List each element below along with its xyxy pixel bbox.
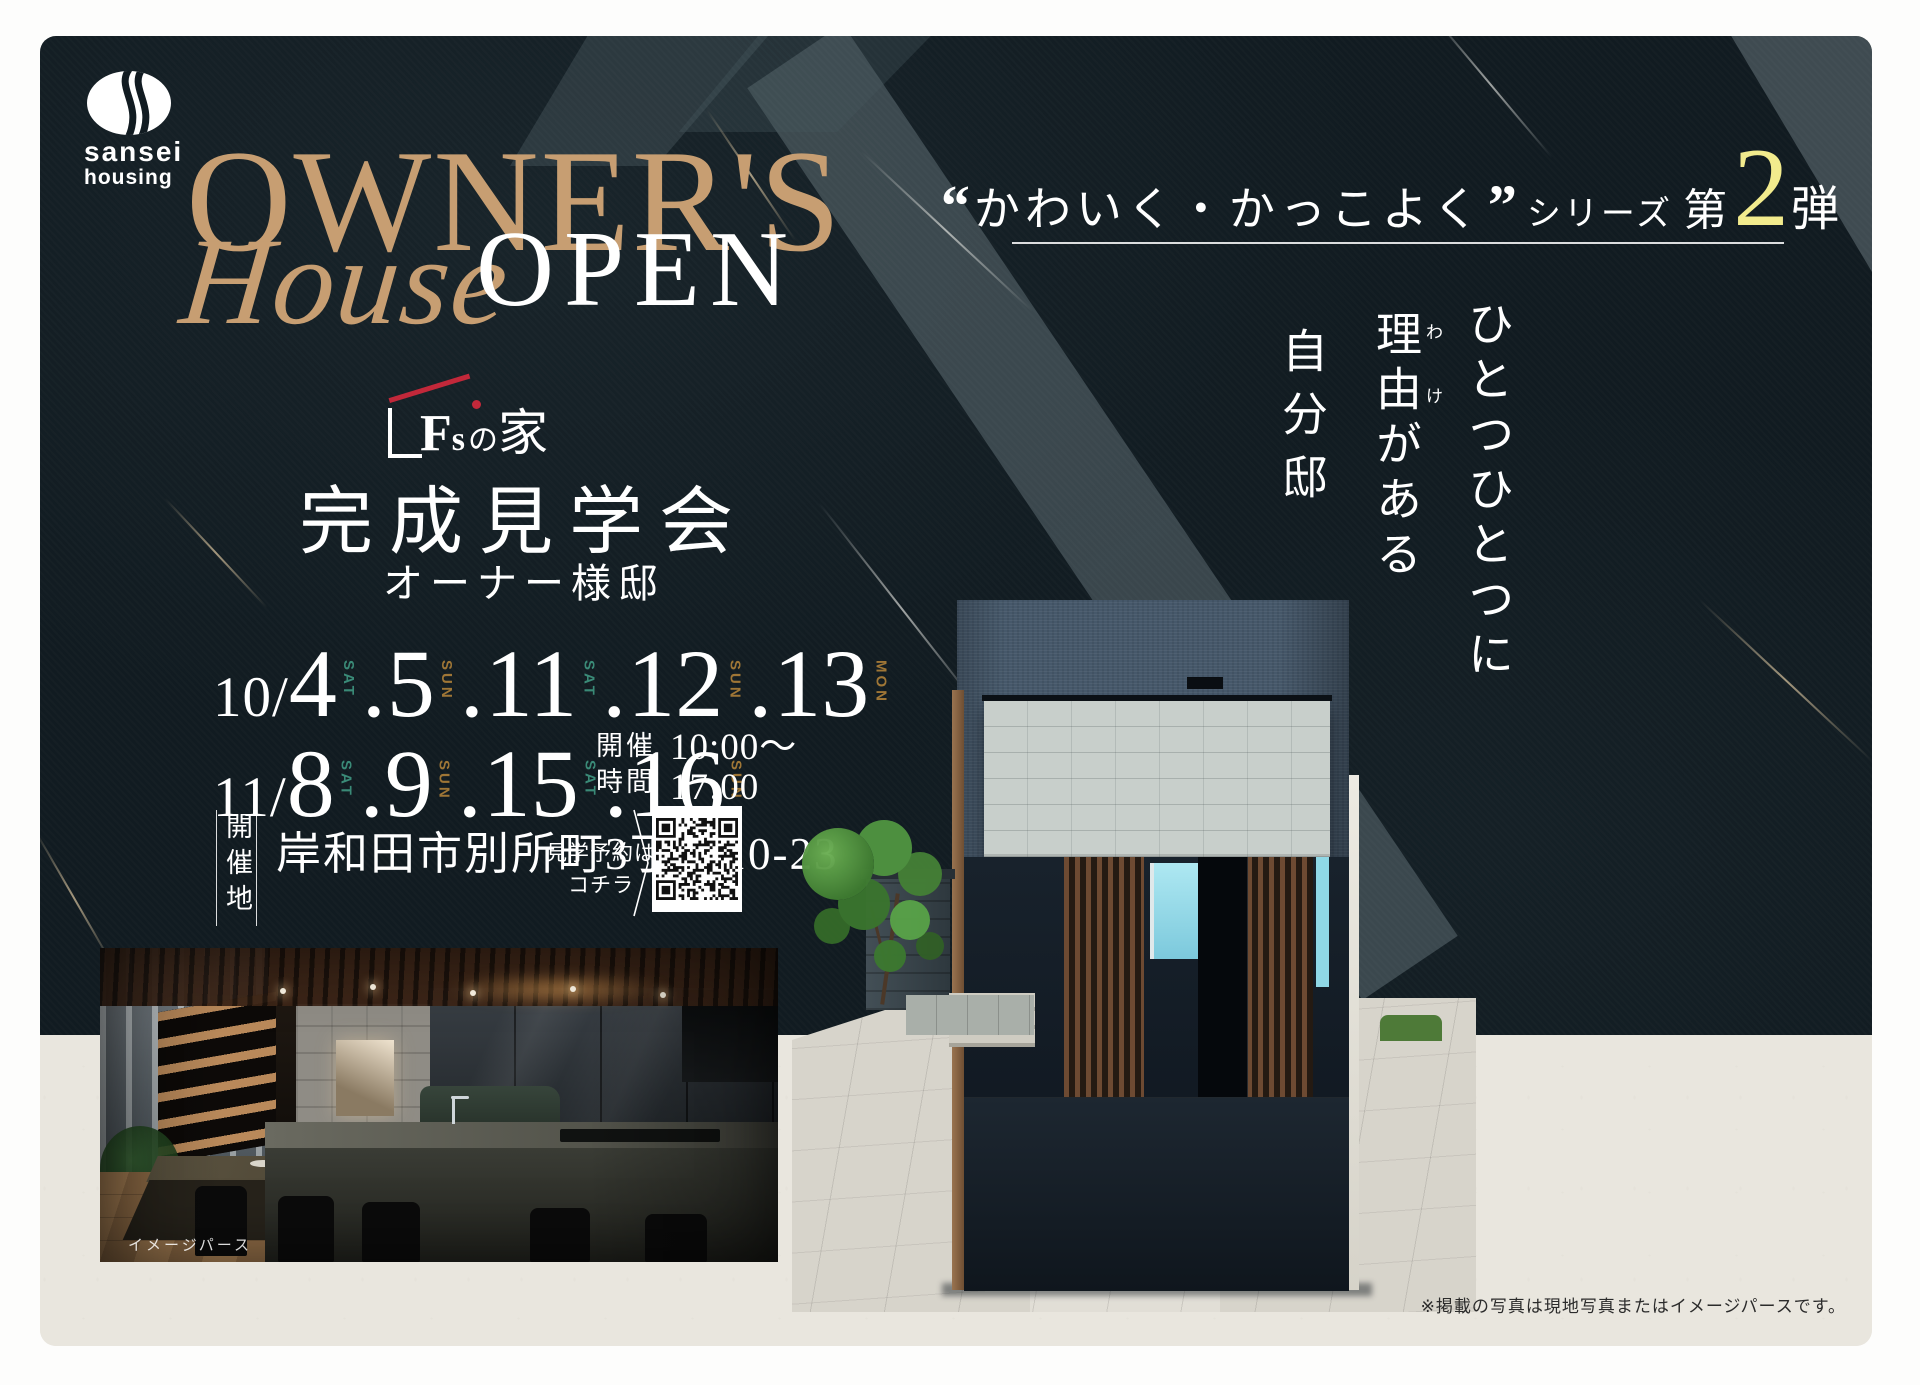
date-day: 12 [627,636,723,732]
date-day: 15 [483,736,579,832]
date-dot: . [748,636,772,732]
vent [1187,677,1223,689]
qr-code [652,806,742,912]
flyer-page: sansei housing OWNER'S House OPEN F s の … [0,0,1920,1385]
date-day: 8 [287,736,335,832]
wood-edge-strip [952,690,964,1290]
chevron-right-icon [632,808,652,918]
wood-slats-left [1064,857,1144,1097]
dow-label: SUN [437,760,452,824]
lit-wall-edge [1349,775,1359,1290]
time-start: 10:00～ [670,728,797,768]
date-dot: . [460,636,484,732]
time-label: 開催 時間 [596,728,656,801]
date-day: 5 [387,636,435,732]
furigana-ke: け [1426,388,1443,405]
window-cyan [1150,863,1202,959]
gold-hairline [1699,600,1872,762]
series-dan: 弾 [1791,186,1839,234]
series-dai: 第 [1683,189,1727,233]
diagonal-band [650,36,1010,132]
fs-f: F [420,408,452,460]
divider [216,810,217,926]
interior-photo [100,948,778,1262]
hero-title-house: House [175,220,515,344]
date-dot: . [360,736,384,832]
series-headline: “ かわいく・かっこよく ” シリーズ 第 2 弾 [975,132,1805,244]
dow-label: SAT [581,660,596,724]
event-subtitle: オーナー様邸 [264,564,784,604]
series-main-text: かわいく・かっこよく [974,187,1484,233]
copy-line2: 理由がある [1372,310,1418,585]
event-time: 開催 時間 10:00～ 17:00 [596,728,797,808]
date-dot: . [458,736,482,832]
exterior-render [792,595,1476,1312]
fs-ie: 家 [498,408,548,458]
qr-pattern-icon [656,811,738,907]
time-label-1: 開催 [596,728,656,764]
hedge [1380,1015,1442,1041]
date-day: 11 [485,636,577,732]
date-day: 9 [385,736,433,832]
dow-label: SAT [341,660,356,724]
hero-title-open: OPEN [476,216,798,324]
quote-open: “ [941,177,970,235]
month-label: 10/ [213,669,289,726]
dow-label: SUN [727,660,742,724]
lower-storey [964,857,1349,1290]
gold-hairline [164,497,268,608]
fs-logo-text: F s の 家 [420,408,548,460]
quote-close: ” [1488,177,1517,235]
tree-canopy [802,828,874,900]
date-dot: . [602,636,626,732]
furigana-wa: わ [1426,324,1443,341]
event-title: 完成見学会 [264,486,784,560]
fs-house-logo: F s の 家 [388,392,558,460]
time-label-2: 時間 [596,764,656,800]
series-word: シリーズ [1527,198,1673,232]
entry-door [1198,857,1248,1097]
series-number: 2 [1733,132,1789,244]
photo-vignette [100,948,778,1262]
interior-caption: イメージパース [128,1234,252,1255]
dow-label: SUN [439,660,454,724]
divider [256,810,257,926]
gold-hairline [40,828,115,968]
base-wall [964,1097,1349,1291]
dow-label: SAT [339,760,354,824]
date-day: 4 [289,636,337,732]
copy-line3: 自分邸 [1278,327,1324,516]
curb-stones [906,995,1034,1035]
window-sliver [1316,857,1329,987]
headline-underline [1012,242,1784,244]
fs-no: の [468,426,498,456]
wood-slats-right [1247,857,1313,1097]
sansei-mark-icon [86,70,172,136]
fs-s: s [452,423,465,457]
schedule-row-october: 10/ 4 SAT . 5 SUN . 11 SAT . 12 SUN . 13… [213,636,891,732]
time-values: 10:00～ 17:00 [670,728,797,808]
poster: sansei housing OWNER'S House OPEN F s の … [40,36,1872,1346]
venue-label: 開催地 [223,812,250,920]
house-corner-icon [388,408,422,458]
date-dot: . [362,636,386,732]
photo-disclaimer: ※掲載の写真は現地写真またはイメージパースです。 [1096,1292,1846,1317]
time-end: 17:00 [670,768,797,808]
stone-panel [984,701,1330,857]
